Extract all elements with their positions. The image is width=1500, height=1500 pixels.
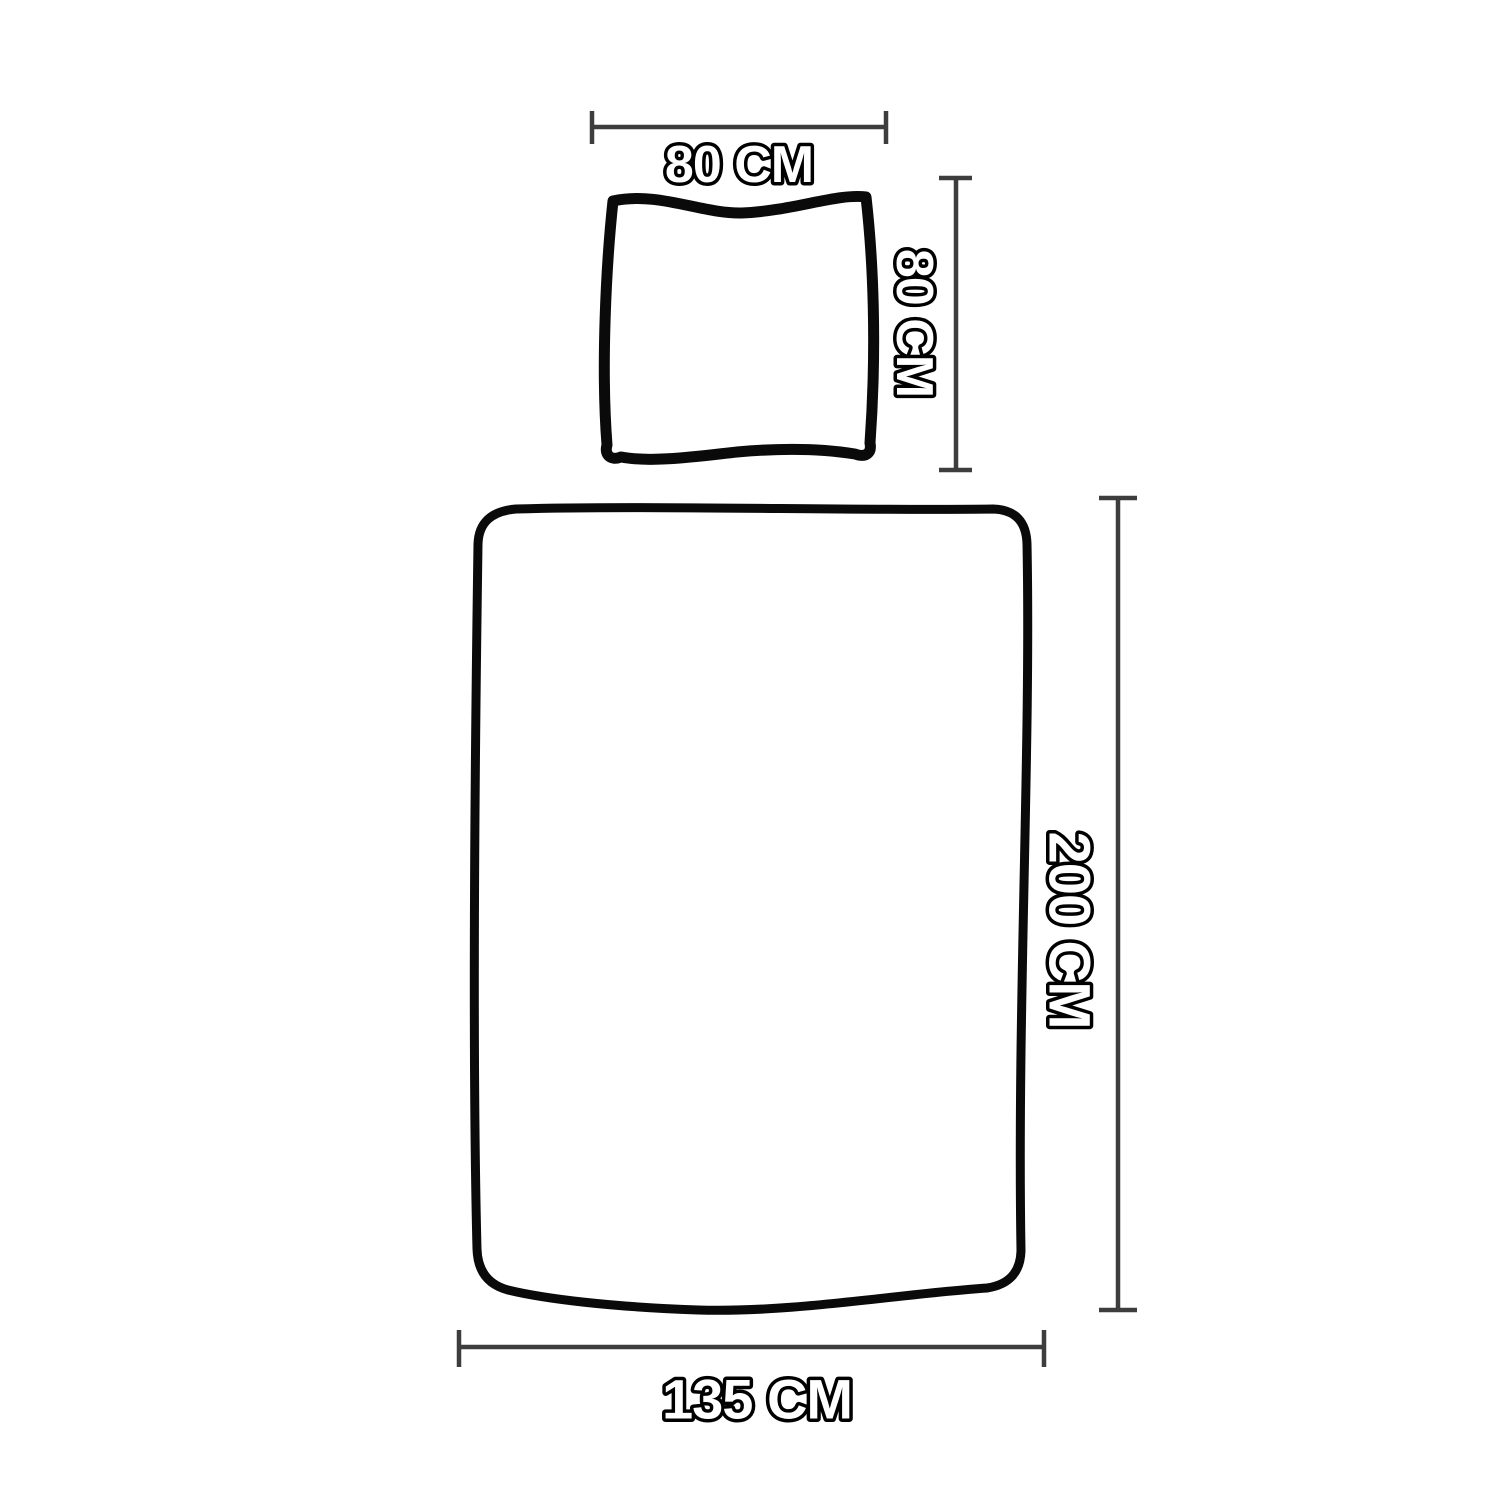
- pillow-height-label: 80 CM: [885, 249, 943, 397]
- duvet-height-label: 200 CM: [1037, 831, 1102, 1028]
- pillow-width-label: 80 CM: [665, 136, 813, 194]
- duvet-height-dimension: 200 CM: [1037, 498, 1138, 1310]
- duvet-width-dimension: 135 CM: [459, 1330, 1044, 1431]
- pillow-outline-path: [604, 196, 873, 459]
- pillow-shape: [604, 196, 873, 459]
- duvet-outline-path: [474, 508, 1027, 1311]
- duvet-shape: [474, 508, 1027, 1311]
- diagram-canvas: 80 CM 80 CM 200 CM 135 CM: [0, 0, 1500, 1500]
- pillow-width-dimension: 80 CM: [592, 111, 886, 194]
- pillow-height-dimension: 80 CM: [885, 178, 972, 470]
- bedding-size-diagram: 80 CM 80 CM 200 CM 135 CM: [0, 0, 1500, 1500]
- duvet-width-label: 135 CM: [662, 1368, 852, 1431]
